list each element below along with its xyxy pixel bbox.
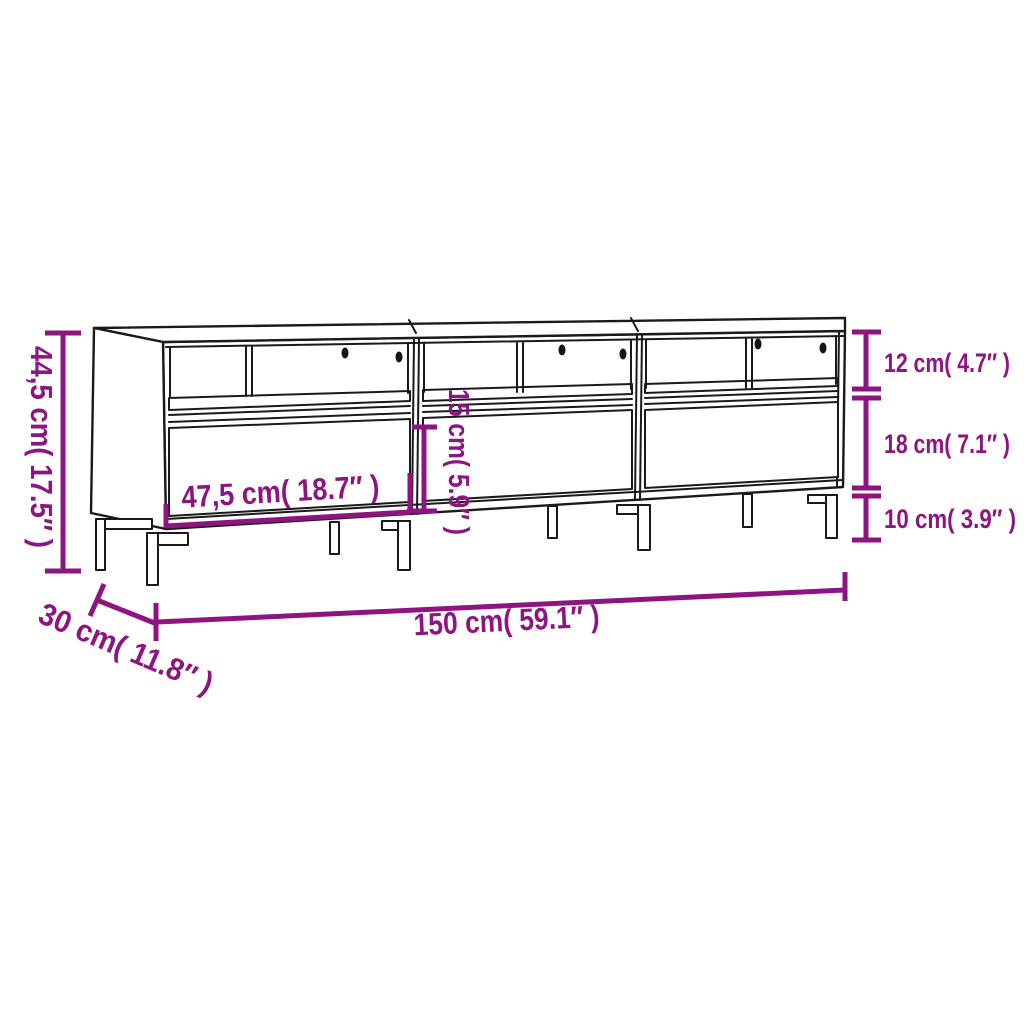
drawer-front [645, 402, 838, 488]
leg [147, 533, 158, 585]
dimension-total-width-label: 150 cm( 59.1″ ) [413, 599, 600, 643]
dimension-total-height-label: 44,5 cm( 17.5″ ) [24, 346, 59, 548]
dimension-drawer-front-height-label: 18 cm( 7.1″ ) [884, 429, 1010, 459]
cable-hole [396, 352, 403, 363]
leg [96, 519, 105, 570]
cabinet-left-side-panel [91, 328, 166, 529]
leg [638, 505, 650, 550]
cable-hole [820, 343, 827, 354]
cable-hole [755, 339, 762, 350]
dimension-compartment-height-label: 12 cm( 4.7″ ) [884, 348, 1010, 378]
dimension-drawer-inner-height-label: 15 cm( 5.9″ ) [442, 389, 474, 535]
diagram-canvas: 44,5 cm( 17.5″ ) 12 cm( 4.7″ ) 18 cm( 7.… [0, 0, 1024, 1024]
dimension-compartment-height: 12 cm( 4.7″ ) [852, 332, 1010, 389]
dimension-leg-height-label: 10 cm( 3.9″ ) [884, 504, 1016, 534]
cable-hole [620, 349, 627, 360]
furniture-dimension-diagram: 44,5 cm( 17.5″ ) 12 cm( 4.7″ ) 18 cm( 7.… [0, 0, 1024, 1024]
cable-hole [559, 345, 566, 356]
leg [826, 495, 837, 538]
dimension-total-width: 150 cm( 59.1″ ) [156, 572, 845, 642]
dimension-drawer-front-height: 18 cm( 7.1″ ) [852, 398, 1010, 488]
leg [330, 522, 339, 554]
leg [548, 506, 557, 538]
dimension-total-depth: 30 cm( 11.8″ ) [34, 584, 219, 701]
dimension-total-height: 44,5 cm( 17.5″ ) [24, 333, 81, 571]
leg [743, 494, 752, 527]
leg [398, 521, 410, 570]
dimension-leg-height: 10 cm( 3.9″ ) [852, 496, 1016, 540]
cable-hole [342, 348, 349, 359]
